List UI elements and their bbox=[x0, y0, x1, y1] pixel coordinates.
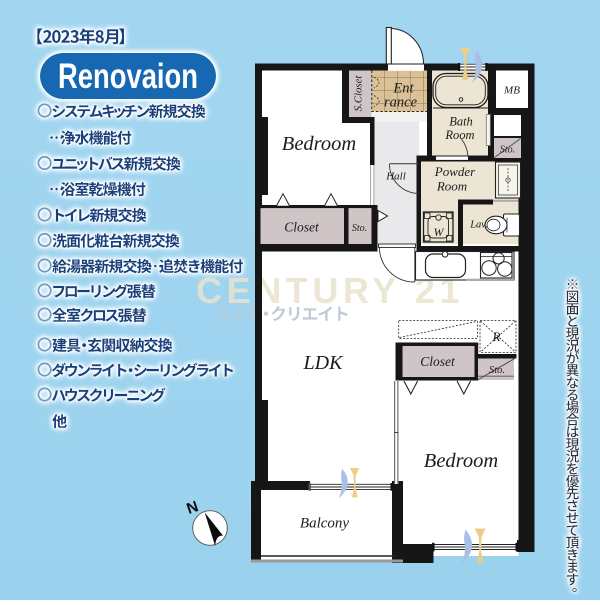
svg-text:Room: Room bbox=[436, 179, 467, 194]
svg-text:R: R bbox=[492, 329, 501, 344]
svg-text:Renovaion: Renovaion bbox=[58, 57, 198, 96]
svg-text:Sto.: Sto. bbox=[352, 223, 367, 234]
svg-text:Balcony: Balcony bbox=[300, 516, 349, 532]
svg-text:Bedroom: Bedroom bbox=[282, 133, 356, 155]
svg-text:rance: rance bbox=[384, 95, 418, 111]
svg-text:Bath: Bath bbox=[449, 115, 473, 129]
svg-text:S.Closet: S.Closet bbox=[353, 75, 365, 112]
svg-text:Bedroom: Bedroom bbox=[424, 450, 498, 472]
svg-text:W: W bbox=[434, 225, 445, 239]
svg-text:Powder: Powder bbox=[434, 164, 476, 179]
svg-text:MB: MB bbox=[503, 85, 520, 97]
svg-text:Closet: Closet bbox=[420, 354, 456, 369]
svg-text:LDK: LDK bbox=[303, 352, 345, 374]
svg-text:Hall: Hall bbox=[385, 171, 406, 183]
svg-text:Sto.: Sto. bbox=[489, 365, 505, 376]
svg-text:Sto.: Sto. bbox=[500, 145, 515, 156]
svg-text:Lav.: Lav. bbox=[469, 220, 488, 231]
svg-text:Room: Room bbox=[444, 128, 474, 142]
svg-text:Closet: Closet bbox=[284, 220, 320, 235]
